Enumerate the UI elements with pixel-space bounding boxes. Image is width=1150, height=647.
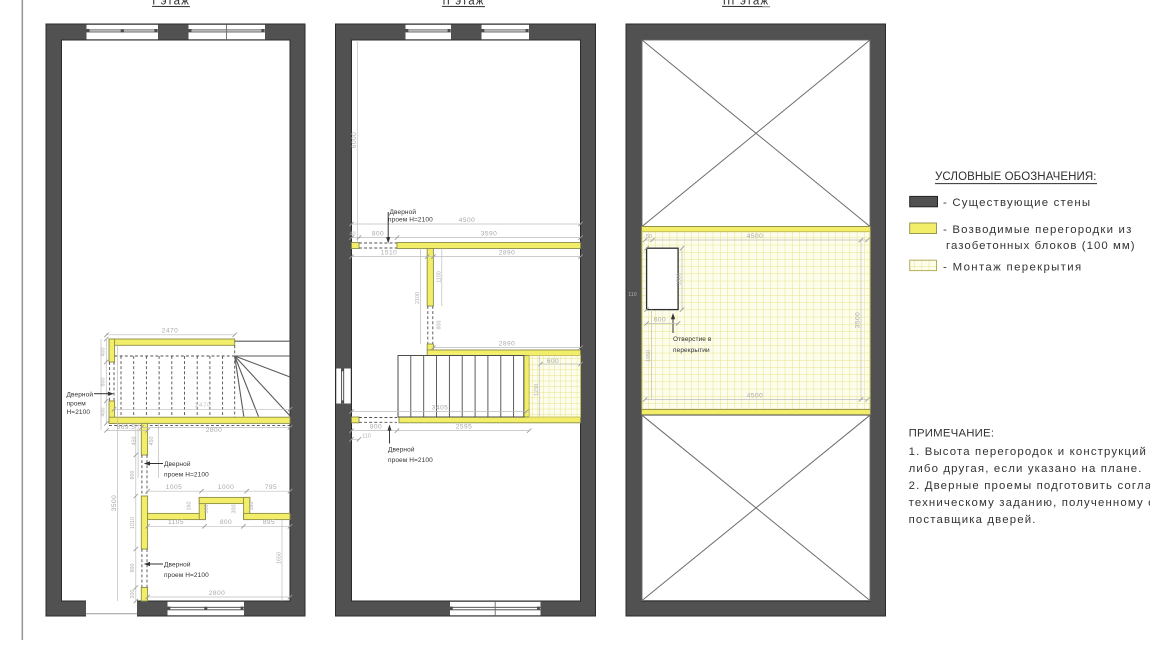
svg-text:600: 600 <box>654 316 666 323</box>
svg-text:1500: 1500 <box>677 273 683 285</box>
svg-text:3500: 3500 <box>855 312 862 328</box>
svg-text:проем Н=2100: проем Н=2100 <box>388 216 433 223</box>
svg-text:ПРИМЕЧАНИЕ:: ПРИМЕЧАНИЕ: <box>909 428 995 440</box>
svg-text:160: 160 <box>186 502 192 511</box>
svg-text:110: 110 <box>628 292 637 298</box>
svg-text:300: 300 <box>204 505 210 514</box>
svg-text:техническому заданию, полученн: техническому заданию, полученному от <box>909 497 1150 509</box>
svg-text:1510: 1510 <box>381 249 397 256</box>
svg-text:450: 450 <box>149 437 155 446</box>
svg-text:поставщика дверей.: поставщика дверей. <box>909 514 1037 526</box>
svg-text:40: 40 <box>350 231 356 237</box>
svg-text:800: 800 <box>101 378 107 387</box>
svg-text:проем Н=2100: проем Н=2100 <box>164 471 209 478</box>
svg-text:800: 800 <box>130 471 136 480</box>
svg-text:4500: 4500 <box>459 217 475 224</box>
svg-text:Н=2100: Н=2100 <box>67 409 91 416</box>
svg-text:Отверстие в: Отверстие в <box>673 336 712 343</box>
svg-text:800: 800 <box>370 423 382 430</box>
svg-text:2890: 2890 <box>499 249 515 256</box>
svg-text:800: 800 <box>372 230 384 237</box>
svg-text:либо другая, если указано на п: либо другая, если указано на плане. <box>909 463 1143 475</box>
svg-text:1005: 1005 <box>166 484 182 491</box>
svg-text:800: 800 <box>220 519 232 526</box>
svg-text:1650: 1650 <box>276 552 282 564</box>
svg-text:795: 795 <box>265 484 277 491</box>
svg-text:Дверной: Дверной <box>390 208 417 216</box>
svg-text:800: 800 <box>436 321 442 330</box>
svg-text:- Существующие стены: - Существующие стены <box>943 197 1091 209</box>
svg-text:2800: 2800 <box>209 590 225 597</box>
svg-text:газобетонных блоков (100 мм): газобетонных блоков (100 мм) <box>946 240 1136 252</box>
svg-text:1230: 1230 <box>534 384 540 396</box>
svg-text:перекрытии: перекрытии <box>673 347 710 354</box>
svg-text:проем Н=2100: проем Н=2100 <box>388 457 433 464</box>
svg-text:50: 50 <box>646 234 652 240</box>
svg-text:Дверной: Дверной <box>164 460 191 468</box>
svg-text:Дверной: Дверной <box>67 390 94 398</box>
svg-text:1105: 1105 <box>168 519 184 526</box>
svg-text:6000: 6000 <box>351 132 358 148</box>
svg-text:проем Н=2100: проем Н=2100 <box>164 572 209 579</box>
svg-text:400: 400 <box>101 348 107 357</box>
svg-text:УСЛОВНЫЕ ОБОЗНАЧЕНИЯ:: УСЛОВНЫЕ ОБОЗНАЧЕНИЯ: <box>935 171 1097 183</box>
svg-text:669.5: 669.5 <box>117 424 136 431</box>
svg-text:1950: 1950 <box>646 350 652 362</box>
svg-text:2100: 2100 <box>415 292 421 304</box>
svg-text:300: 300 <box>232 505 238 514</box>
svg-text:450: 450 <box>131 437 137 446</box>
svg-text:2. Дверные проемы подготовить: 2. Дверные проемы подготовить согласно <box>909 480 1150 492</box>
svg-text:160: 160 <box>249 502 255 511</box>
svg-text:Дверной: Дверной <box>164 561 191 569</box>
svg-text:800: 800 <box>130 564 136 573</box>
svg-text:3590: 3590 <box>481 230 497 237</box>
svg-text:4500: 4500 <box>747 233 763 240</box>
svg-text:895: 895 <box>263 519 275 526</box>
svg-text:проем: проем <box>67 401 87 408</box>
svg-text:3500: 3500 <box>111 495 118 511</box>
svg-text:Дверной: Дверной <box>388 445 415 453</box>
svg-text:2890: 2890 <box>499 340 515 347</box>
svg-text:2470: 2470 <box>162 328 178 335</box>
svg-text:600: 600 <box>547 358 559 365</box>
svg-text:4500: 4500 <box>747 392 763 399</box>
svg-text:1. Высота перегородок и констр: 1. Высота перегородок и конструкций 2650… <box>909 446 1150 458</box>
svg-text:- Возводимые перегородки из: - Возводимые перегородки из <box>943 224 1133 236</box>
svg-text:1100: 1100 <box>436 271 442 283</box>
svg-text:2470: 2470 <box>195 402 211 409</box>
svg-text:110: 110 <box>362 434 371 440</box>
svg-text:2595: 2595 <box>456 423 472 430</box>
svg-text:400: 400 <box>101 408 107 417</box>
svg-text:- Монтаж перекрытия: - Монтаж перекрытия <box>943 261 1082 273</box>
svg-text:2800: 2800 <box>206 427 222 434</box>
svg-text:1010: 1010 <box>130 517 136 529</box>
svg-text:1000: 1000 <box>218 484 234 491</box>
svg-text:200: 200 <box>130 590 136 599</box>
svg-text:3405: 3405 <box>432 404 448 411</box>
